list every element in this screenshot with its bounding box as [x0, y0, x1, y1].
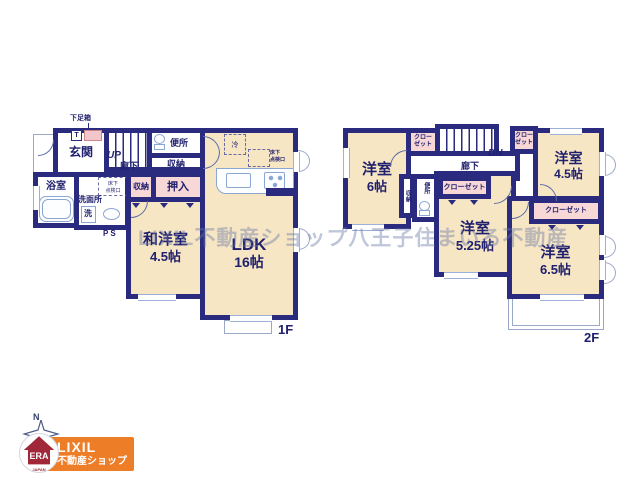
bathtub-inner-icon [42, 199, 71, 219]
window [293, 152, 300, 172]
closet-oshiire: 押入 [151, 172, 205, 202]
underfloor-hatch-wash-l1: 床下 [108, 180, 118, 187]
kitchen-stove-icon [264, 172, 285, 189]
waroom-size: 4.5帖 [150, 250, 181, 265]
bath-label: 浴室 [46, 181, 66, 192]
hallway-label-2f: 廊下 [461, 161, 479, 171]
closet-d-label: クローゼット [545, 207, 587, 215]
ps-label: PS [103, 230, 118, 239]
oshiire-label: 押入 [167, 181, 189, 193]
closet-a-l1: クロー [414, 135, 432, 142]
underfloor-hatch-ldk [248, 149, 270, 167]
brand-line2: 不動産ショップ [57, 456, 134, 468]
up-label: UP [107, 150, 121, 161]
washer-label: 洗 [84, 210, 92, 219]
underfloor-ldk-l2: 点検口 [270, 157, 285, 164]
door-fold-mark [576, 225, 584, 230]
ldk-size: 16帖 [234, 255, 264, 271]
window [540, 294, 584, 301]
era-label: ERA [20, 451, 58, 461]
watermark-text: LIXIL不動産ショップ八王子住まいる不動産 [138, 222, 574, 249]
porch-step-1f [224, 320, 272, 334]
toilet-icon-1f [154, 134, 165, 144]
toilet-tank-icon-1f [154, 144, 165, 150]
west6-size: 6帖 [367, 180, 387, 195]
window [343, 148, 350, 178]
window [550, 128, 582, 135]
door-fold-mark [160, 203, 168, 208]
toilet-2f-label: 便所 [422, 182, 429, 194]
closet-a: クロー ゼット [406, 128, 440, 156]
closet-c: クローゼット [438, 176, 491, 199]
west45-name: 洋室 [555, 151, 583, 167]
underfloor-hatch-wash-l2: 点検口 [105, 187, 120, 194]
kitchen-wall-block [266, 188, 296, 196]
window [599, 152, 606, 176]
t-box: T [71, 130, 82, 141]
genkan-label: 玄関 [69, 146, 93, 159]
underfloor-hatch-wash: 床下 点検口 [98, 177, 128, 196]
fridge-space: 冷 [224, 134, 246, 155]
balcony-2f-inner [512, 298, 600, 326]
shoebox-label: 下足箱 [70, 115, 91, 123]
closet-b-l1: クロー [515, 133, 533, 140]
brand-line1: LIXIL [57, 440, 134, 455]
shoebox-box [84, 130, 102, 141]
closet-storage-1f-label: 収納 [133, 183, 149, 192]
floor2-tag: 2F [584, 330, 599, 345]
underfloor-hatch-ldk-label: 床下 点検口 [270, 150, 285, 163]
window [444, 272, 478, 279]
washroom-label: 洗面所 [78, 196, 102, 205]
door-fold-mark [470, 200, 478, 205]
sink-icon [103, 208, 120, 220]
closet-d: クローゼット [529, 198, 603, 224]
hallway-label-1f: 廊下 [120, 161, 138, 171]
door-fold-mark [186, 203, 194, 208]
floor1-tag: 1F [278, 322, 293, 337]
west65-size: 6.5帖 [540, 263, 571, 278]
storage-2f-label: 収納 [404, 190, 411, 202]
window [230, 315, 272, 322]
closet-a-l2: ゼット [414, 142, 432, 149]
door-fold-mark [448, 200, 456, 205]
window [138, 294, 176, 301]
era-badge: ERA JAPAN [19, 433, 59, 473]
toilet-label-1f: 便所 [170, 138, 188, 148]
window [33, 186, 40, 210]
brand-plate: LIXIL 不動産ショップ [47, 437, 134, 471]
shoebox-pointer-line [88, 123, 89, 129]
north-label: N [33, 412, 40, 422]
closet-c-label: クローゼット [444, 184, 486, 192]
closet-b: クロー ゼット [510, 126, 538, 154]
toilet-tank-icon-2f [419, 210, 430, 216]
kitchen-sink-icon [226, 173, 251, 188]
closet-b-label: クロー ゼット [515, 133, 533, 146]
closet-a-label: クロー ゼット [414, 135, 432, 148]
closet-b-l2: ゼット [515, 140, 533, 147]
west45-size: 4.5帖 [554, 168, 583, 181]
fridge-label: 冷 [232, 140, 239, 150]
floorplan-image: 玄関 便所 収納 UP 廊下 浴室 床下 点検口 洗面所 洗 PS 収納 [0, 0, 640, 480]
dn-label: DN [488, 148, 502, 159]
west6-name: 洋室 [362, 162, 392, 179]
window [599, 235, 606, 255]
window [599, 260, 606, 280]
era-country-label: JAPAN [20, 467, 58, 472]
